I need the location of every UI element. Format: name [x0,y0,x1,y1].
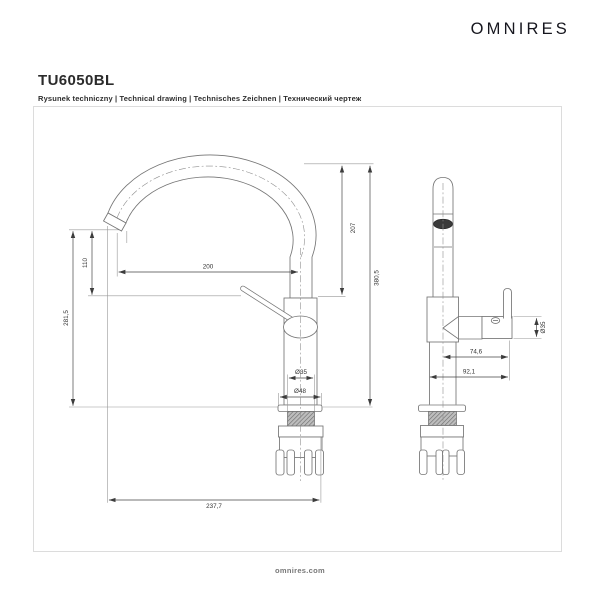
dim-label: 110 [82,257,89,268]
handle-set-screw [491,318,499,324]
dim-label: Ø35 [540,321,547,333]
spout-arc [108,155,316,298]
dim-total-height: 380,5 [370,166,381,406]
dim-label: 237,7 [206,503,222,510]
dim-overall-depth: 92,1 [430,368,508,377]
dim-handle-diameter: Ø35 [514,317,547,339]
dim-label: 207 [350,222,357,233]
dim-handle-offset: 74,6 [444,341,510,381]
dim-label: 92,1 [463,368,476,375]
threaded-shank [288,412,315,427]
dim-arc-clearance: 207 [342,166,357,295]
side-threaded-shank [429,412,457,426]
dim-label: 380,5 [374,270,381,286]
dim-spout-outlet-height: 281,5 [63,231,73,406]
side-mounting-nut [421,426,464,438]
mounting-flange [278,405,322,412]
handle-grip [504,289,512,319]
dim-spout-outlet-drop: 110 [82,231,92,295]
page-root: OMNIRES TU6050BL Rysunek techniczny | Te… [0,0,600,600]
dim-spout-reach: 200 [119,263,298,272]
dim-label: Ø48 [294,388,306,395]
side-mounting-flange [419,405,466,412]
dim-label: Ø35 [295,369,307,376]
dim-label: 200 [203,263,214,270]
side-view: Ø35 74,6 92,1 [419,178,547,482]
side-bracket-prongs [420,450,465,475]
technical-drawing-canvas: 110 281,5 200 207 380,5 Ø35 [0,0,600,600]
dim-label: 74,6 [470,348,483,355]
dim-label: 281,5 [63,310,70,326]
front-view: 110 281,5 200 207 380,5 Ø35 [63,155,381,510]
